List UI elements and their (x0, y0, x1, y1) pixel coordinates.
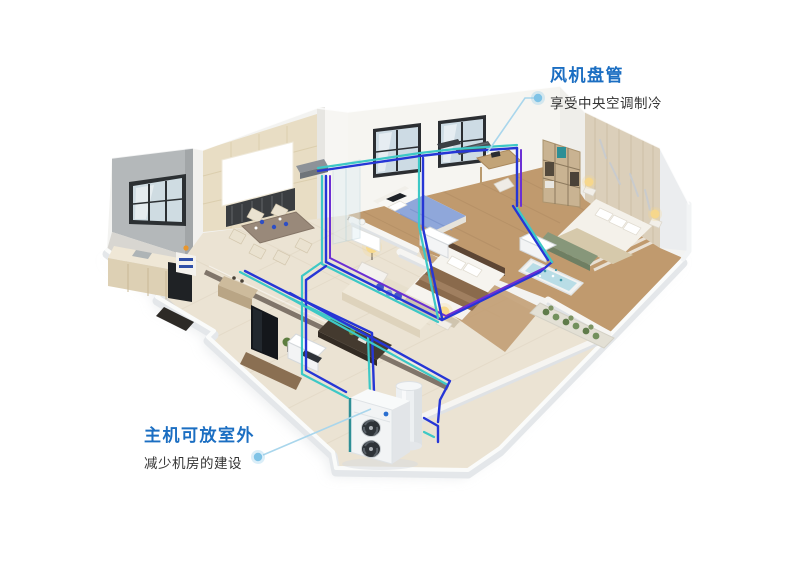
hvac-apartment-diagram: 风机盘管 享受中央空调制冷 主机可放室外 减少机房的建设 (0, 0, 800, 574)
kitchen-shelf (176, 252, 196, 276)
annotation-fan-coil-subtitle: 享受中央空调制冷 (550, 92, 662, 112)
fan-top (362, 420, 381, 437)
annotation-fan-coil-title: 风机盘管 (550, 61, 662, 86)
shower-glass (333, 160, 360, 244)
right-outer-wall (660, 148, 689, 251)
kitchen-cabinets (108, 245, 196, 302)
wardrobe (543, 140, 580, 207)
brand-dot (384, 412, 389, 417)
annotation-fan-coil: 风机盘管 享受中央空调制冷 (550, 61, 662, 112)
annotation-outdoor-unit: 主机可放室外 减少机房的建设 (144, 421, 255, 472)
annotation-outdoor-unit-subtitle: 减少机房的建设 (144, 452, 255, 472)
annotation-outdoor-unit-title: 主机可放室外 (144, 421, 255, 446)
fan-bottom (362, 441, 381, 458)
apartment-cutaway-illustration (0, 0, 800, 574)
fruit-bowl (183, 245, 188, 250)
